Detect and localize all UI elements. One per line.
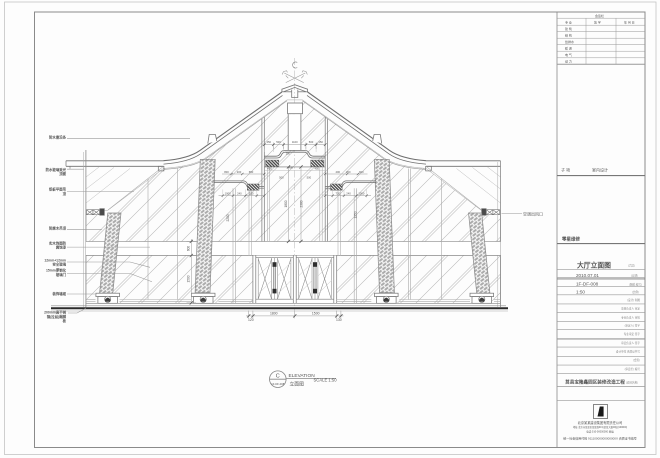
- svg-text:1800: 1800: [270, 312, 278, 316]
- svg-text:顶面: 顶面: [59, 171, 66, 176]
- svg-text:1100: 1100: [292, 140, 298, 144]
- svg-text:200: 200: [286, 152, 291, 155]
- svg-text:(项目名称): (项目名称): [626, 381, 638, 385]
- svg-text:动 力: 动 力: [565, 59, 572, 64]
- svg-text:2380: 2380: [300, 200, 304, 207]
- svg-text:防水玻璃采光: 防水玻璃采光: [46, 167, 67, 172]
- svg-text:结 构: 结 构: [565, 33, 572, 38]
- svg-text:800: 800: [224, 170, 229, 174]
- svg-text:520: 520: [249, 191, 254, 195]
- svg-text:450: 450: [267, 166, 272, 170]
- svg-text:审定负责人 签字: 审定负责人 签字: [621, 341, 640, 345]
- svg-text:实木饰面防: 实木饰面防: [49, 240, 67, 245]
- svg-text:腐蚀漆: 腐蚀漆: [56, 245, 67, 250]
- svg-text:玻璃门: 玻璃门: [56, 272, 67, 277]
- svg-text:空调出风口: 空调出风口: [523, 211, 543, 217]
- svg-text:2010.07.01: 2010.07.01: [576, 273, 599, 278]
- svg-text:200: 200: [237, 170, 242, 174]
- svg-text:(比例): (比例): [632, 290, 639, 294]
- svg-text:立面图: 立面图: [290, 380, 305, 387]
- svg-text:500: 500: [307, 175, 312, 179]
- svg-text:铝板平面吊: 铝板平面吊: [49, 187, 67, 192]
- svg-text:(审定人) 签字: (审定人) 签字: [625, 324, 641, 328]
- svg-text:400: 400: [336, 170, 341, 174]
- svg-text:(设计) 制图: (设计) 制图: [627, 298, 640, 302]
- svg-text:(图纸.编号): (图纸.编号): [629, 282, 642, 286]
- svg-text:防水塞沿条: 防水塞沿条: [49, 135, 67, 140]
- svg-text:室内设计: 室内设计: [592, 167, 608, 173]
- svg-text:专业负责人 审核: 专业负责人 审核: [621, 315, 640, 319]
- svg-text:500: 500: [279, 175, 284, 179]
- svg-text:720: 720: [336, 191, 341, 195]
- svg-text:15mm厚钢化: 15mm厚钢化: [46, 268, 67, 273]
- svg-text:1F-DF-008: 1F-DF-008: [271, 382, 284, 386]
- svg-text:北京某某建设集团有限责任公司: 北京某某建设集团有限责任公司: [578, 420, 623, 425]
- svg-text:(会签): (会签): [633, 358, 640, 362]
- svg-text:450: 450: [318, 140, 323, 144]
- svg-text:莒县宝隆鑫园区装修改造工程: 莒县宝隆鑫园区装修改造工程: [565, 379, 625, 386]
- svg-text:500: 500: [276, 140, 281, 144]
- svg-text:600: 600: [359, 170, 364, 174]
- svg-text:2200: 2200: [226, 214, 230, 221]
- svg-text:400: 400: [288, 166, 293, 170]
- svg-text:1:50: 1:50: [576, 289, 585, 294]
- svg-text:200mm高不锈: 200mm高不锈: [44, 310, 66, 315]
- svg-text:SCALE 1:50: SCALE 1:50: [314, 377, 338, 382]
- svg-text:1500: 1500: [187, 275, 191, 282]
- svg-text:1500: 1500: [312, 312, 320, 316]
- svg-text:450: 450: [315, 166, 320, 170]
- svg-text:(六层): (六层): [628, 264, 635, 268]
- svg-text:安全玻璃: 安全玻璃: [52, 262, 66, 267]
- svg-text:暖 通: 暖 通: [565, 46, 572, 51]
- svg-text:500: 500: [309, 140, 314, 144]
- svg-text:大厅立面图: 大厅立面图: [577, 261, 611, 270]
- svg-text:120: 120: [248, 318, 254, 322]
- svg-text:200: 200: [346, 170, 351, 174]
- svg-text:1000: 1000: [358, 191, 364, 195]
- svg-text:防腐木吊顶: 防腐木吊顶: [49, 226, 67, 231]
- svg-text:电话:010-00000000 邮编: 电话:010-00000000 邮编: [586, 430, 614, 434]
- svg-text:650: 650: [249, 170, 254, 174]
- svg-text:(审定栏) 编号: (审定栏) 编号: [625, 367, 641, 371]
- svg-text:统一社会信用代码 91110000000000000X 资质: 统一社会信用代码 91110000000000000X 资质证书编号: [563, 436, 637, 441]
- svg-text:600: 600: [187, 246, 191, 252]
- svg-text:设计单位 资质证书号: 设计单位 资质证书号: [616, 350, 640, 354]
- svg-text:装饰墙裙: 装饰墙裙: [51, 291, 66, 296]
- svg-text:1800: 1800: [284, 200, 288, 207]
- svg-text:240: 240: [346, 191, 351, 195]
- svg-text:专 业: 专 业: [565, 20, 572, 25]
- svg-text:240: 240: [237, 191, 242, 195]
- svg-text:C: C: [276, 373, 280, 379]
- svg-text:电 气: 电 气: [565, 52, 572, 57]
- svg-text:给排水: 给排水: [565, 39, 574, 44]
- svg-text:1000: 1000: [225, 191, 231, 195]
- svg-text:1F-DF-008: 1F-DF-008: [576, 282, 599, 287]
- svg-text:签 字: 签 字: [594, 20, 601, 25]
- svg-text:会签栏: 会签栏: [595, 13, 604, 18]
- svg-text:1250: 1250: [354, 211, 358, 218]
- svg-text:(日期): (日期): [631, 274, 638, 278]
- svg-text:建 筑: 建 筑: [565, 26, 572, 31]
- svg-text:项目负责人 审定: 项目负责人 审定: [621, 307, 640, 311]
- svg-text:子 项: 子 项: [561, 167, 570, 173]
- svg-text:450: 450: [267, 140, 272, 144]
- svg-text:钢(拉丝)踢脚: 钢(拉丝)踢脚: [47, 314, 67, 319]
- svg-text:零星维修: 零星维修: [562, 236, 580, 243]
- svg-text:年 月 日: 年 月 日: [624, 20, 635, 25]
- svg-text:130: 130: [336, 318, 342, 322]
- svg-text:专业审定 签字: 专业审定 签字: [624, 332, 641, 336]
